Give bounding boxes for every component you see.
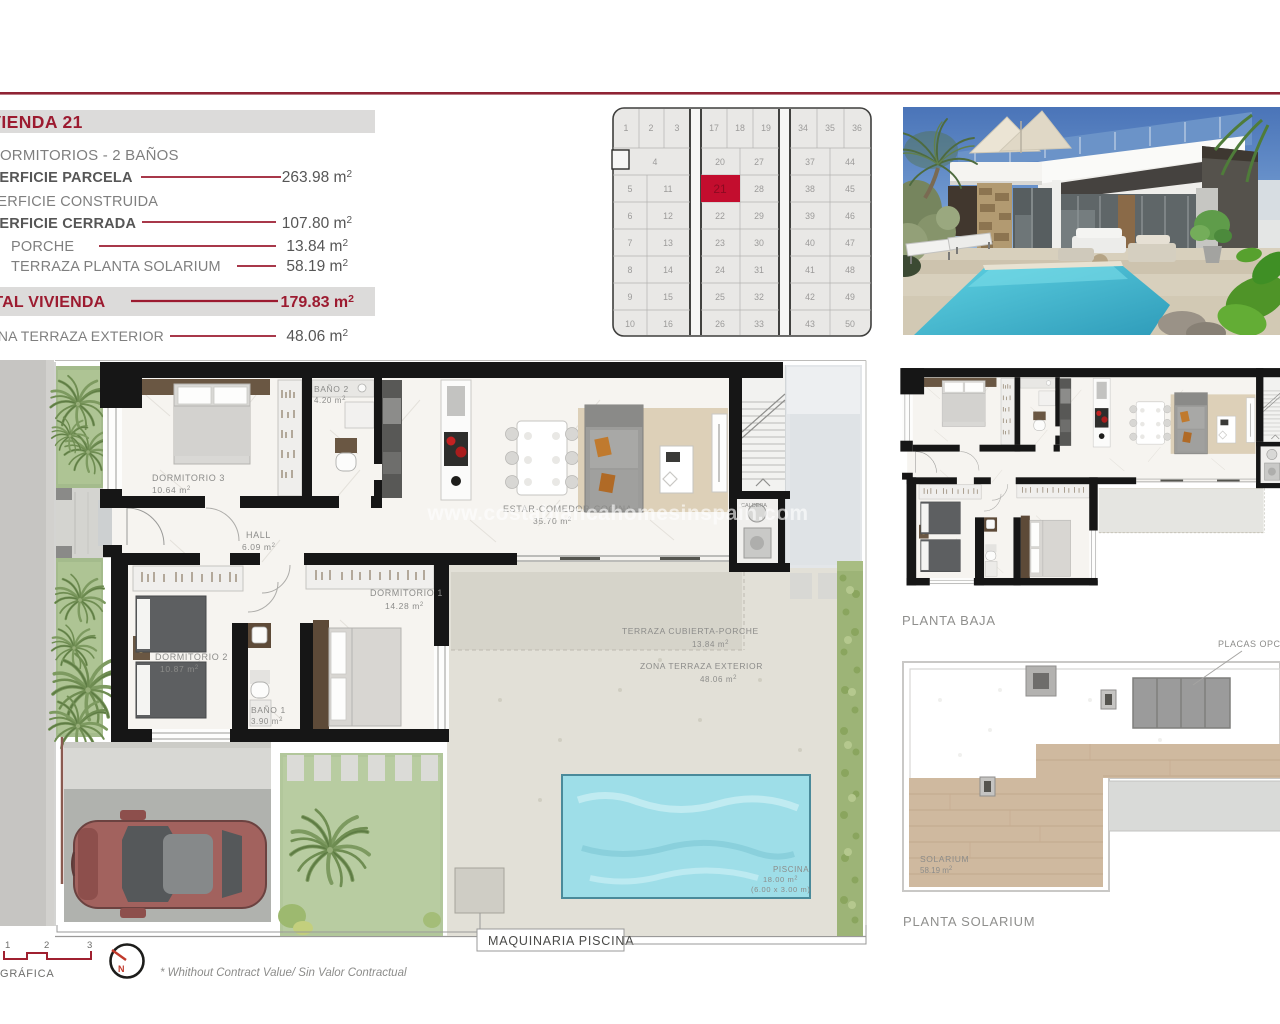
svg-text:3 DORMITORIOS - 2 BAÑOS: 3 DORMITORIOS - 2 BAÑOS	[0, 147, 179, 164]
svg-text:45: 45	[845, 184, 855, 194]
svg-text:TOTAL VIVIENDA: TOTAL VIVIENDA	[0, 294, 106, 311]
svg-text:4.20 m2: 4.20 m2	[314, 396, 346, 405]
svg-text:33: 33	[754, 319, 764, 329]
svg-text:12: 12	[663, 211, 673, 221]
svg-text:13: 13	[663, 238, 673, 248]
svg-text:17: 17	[709, 123, 719, 133]
svg-text:263.98 m2: 263.98 m2	[282, 169, 353, 186]
svg-text:41: 41	[805, 265, 815, 275]
svg-text:4: 4	[653, 157, 658, 167]
svg-text:48.06 m2: 48.06 m2	[286, 328, 348, 345]
svg-text:PLACAS OPCIO: PLACAS OPCIO	[1218, 639, 1280, 649]
svg-text:13.84 m2: 13.84 m2	[692, 640, 729, 649]
svg-text:1: 1	[5, 940, 10, 951]
svg-text:* Whithout Contract Value/ Si: * Whithout Contract Value/ Sin Valor Con…	[160, 967, 407, 979]
svg-text:6.09 m2: 6.09 m2	[242, 542, 276, 552]
svg-text:36: 36	[852, 123, 862, 133]
svg-text:3: 3	[87, 940, 92, 951]
svg-text:34: 34	[798, 123, 808, 133]
svg-text:26: 26	[715, 319, 725, 329]
svg-text:28: 28	[754, 184, 764, 194]
svg-text:19: 19	[761, 123, 771, 133]
svg-text:31: 31	[754, 265, 764, 275]
svg-text:MAQUINARIA PISCINA: MAQUINARIA PISCINA	[488, 934, 634, 948]
svg-text:16: 16	[663, 319, 673, 329]
svg-text:PLANTA BAJA: PLANTA BAJA	[902, 613, 996, 628]
svg-text:21: 21	[713, 182, 727, 196]
svg-text:BAÑO 2: BAÑO 2	[314, 384, 349, 394]
svg-text:8: 8	[628, 265, 633, 275]
svg-text:35: 35	[825, 123, 835, 133]
svg-text:20: 20	[715, 157, 725, 167]
svg-text:50: 50	[845, 319, 855, 329]
svg-text:18: 18	[735, 123, 745, 133]
svg-text:24: 24	[715, 265, 725, 275]
svg-text:PISCINA: PISCINA	[773, 865, 809, 874]
svg-text:10.87 m2: 10.87 m2	[160, 664, 199, 674]
svg-text:37: 37	[805, 157, 815, 167]
svg-text:58.19 m2: 58.19 m2	[286, 258, 348, 275]
svg-text:14.28 m2: 14.28 m2	[385, 601, 424, 611]
svg-text:HALL: HALL	[246, 530, 271, 540]
svg-text:10: 10	[625, 319, 635, 329]
svg-text:179.83 m2: 179.83 m2	[281, 293, 355, 311]
svg-text:SOLARIUM: SOLARIUM	[920, 854, 969, 864]
svg-text:43: 43	[805, 319, 815, 329]
svg-text:107.80 m2: 107.80 m2	[282, 215, 353, 232]
svg-text:GRÁFICA: GRÁFICA	[0, 967, 55, 980]
svg-text:(6.00 x 3.00 m): (6.00 x 3.00 m)	[751, 885, 810, 894]
svg-text:DORMITORIO 2: DORMITORIO 2	[155, 652, 228, 662]
svg-text:13.84 m2: 13.84 m2	[286, 238, 348, 255]
svg-text:25: 25	[715, 292, 725, 302]
svg-text:30: 30	[754, 238, 764, 248]
svg-text:www.costablancahomesinspain.co: www.costablancahomesinspain.com	[426, 502, 808, 525]
svg-text:49: 49	[845, 292, 855, 302]
svg-text:27: 27	[754, 157, 764, 167]
svg-text:18.00 m2: 18.00 m2	[763, 875, 798, 884]
svg-text:TERRAZA CUBIERTA-PORCHE: TERRAZA CUBIERTA-PORCHE	[622, 626, 759, 636]
svg-text:3.90 m2: 3.90 m2	[251, 717, 283, 726]
svg-text:44: 44	[845, 157, 855, 167]
svg-text:48.06 m2: 48.06 m2	[700, 675, 737, 684]
svg-text:48: 48	[845, 265, 855, 275]
svg-text:SUPERFICIE CERRADA: SUPERFICIE CERRADA	[0, 216, 136, 232]
svg-text:15: 15	[663, 292, 673, 302]
svg-text:SUPERFICIE PARCELA: SUPERFICIE PARCELA	[0, 170, 133, 186]
svg-text:PLANTA SOLARIUM: PLANTA SOLARIUM	[903, 914, 1035, 929]
svg-text:14: 14	[663, 265, 673, 275]
svg-text:10.64 m2: 10.64 m2	[152, 485, 191, 495]
svg-text:7: 7	[628, 238, 633, 248]
svg-text:2: 2	[44, 940, 49, 951]
svg-text:32: 32	[754, 292, 764, 302]
svg-text:PORCHE: PORCHE	[11, 239, 74, 255]
svg-text:DORMITORIO 3: DORMITORIO 3	[152, 473, 225, 483]
svg-text:23: 23	[715, 238, 725, 248]
svg-text:3: 3	[675, 123, 680, 133]
svg-text:46: 46	[845, 211, 855, 221]
svg-text:6: 6	[628, 211, 633, 221]
svg-text:1: 1	[624, 123, 629, 133]
svg-text:22: 22	[715, 211, 725, 221]
svg-text:2: 2	[649, 123, 654, 133]
svg-text:40: 40	[805, 238, 815, 248]
svg-text:47: 47	[845, 238, 855, 248]
svg-text:ZONA TERRAZA EXTERIOR: ZONA TERRAZA EXTERIOR	[0, 328, 164, 344]
svg-text:VIVIENDA 21: VIVIENDA 21	[0, 112, 83, 132]
svg-text:39: 39	[805, 211, 815, 221]
svg-text:11: 11	[663, 184, 672, 194]
svg-text:29: 29	[754, 211, 764, 221]
svg-text:DORMITORIO 1: DORMITORIO 1	[370, 588, 443, 598]
svg-text:N: N	[118, 964, 125, 974]
svg-text:38: 38	[805, 184, 815, 194]
svg-text:SUPERFICIE CONSTRUIDA: SUPERFICIE CONSTRUIDA	[0, 194, 158, 210]
svg-text:58.19 m2: 58.19 m2	[920, 866, 953, 875]
svg-text:9: 9	[628, 292, 633, 302]
svg-text:BAÑO 1: BAÑO 1	[251, 705, 286, 715]
svg-text:TERRAZA PLANTA SOLARIUM: TERRAZA PLANTA SOLARIUM	[11, 259, 221, 275]
svg-text:42: 42	[805, 292, 815, 302]
svg-text:ZONA TERRAZA EXTERIOR: ZONA TERRAZA EXTERIOR	[640, 661, 763, 671]
svg-text:5: 5	[628, 184, 633, 194]
